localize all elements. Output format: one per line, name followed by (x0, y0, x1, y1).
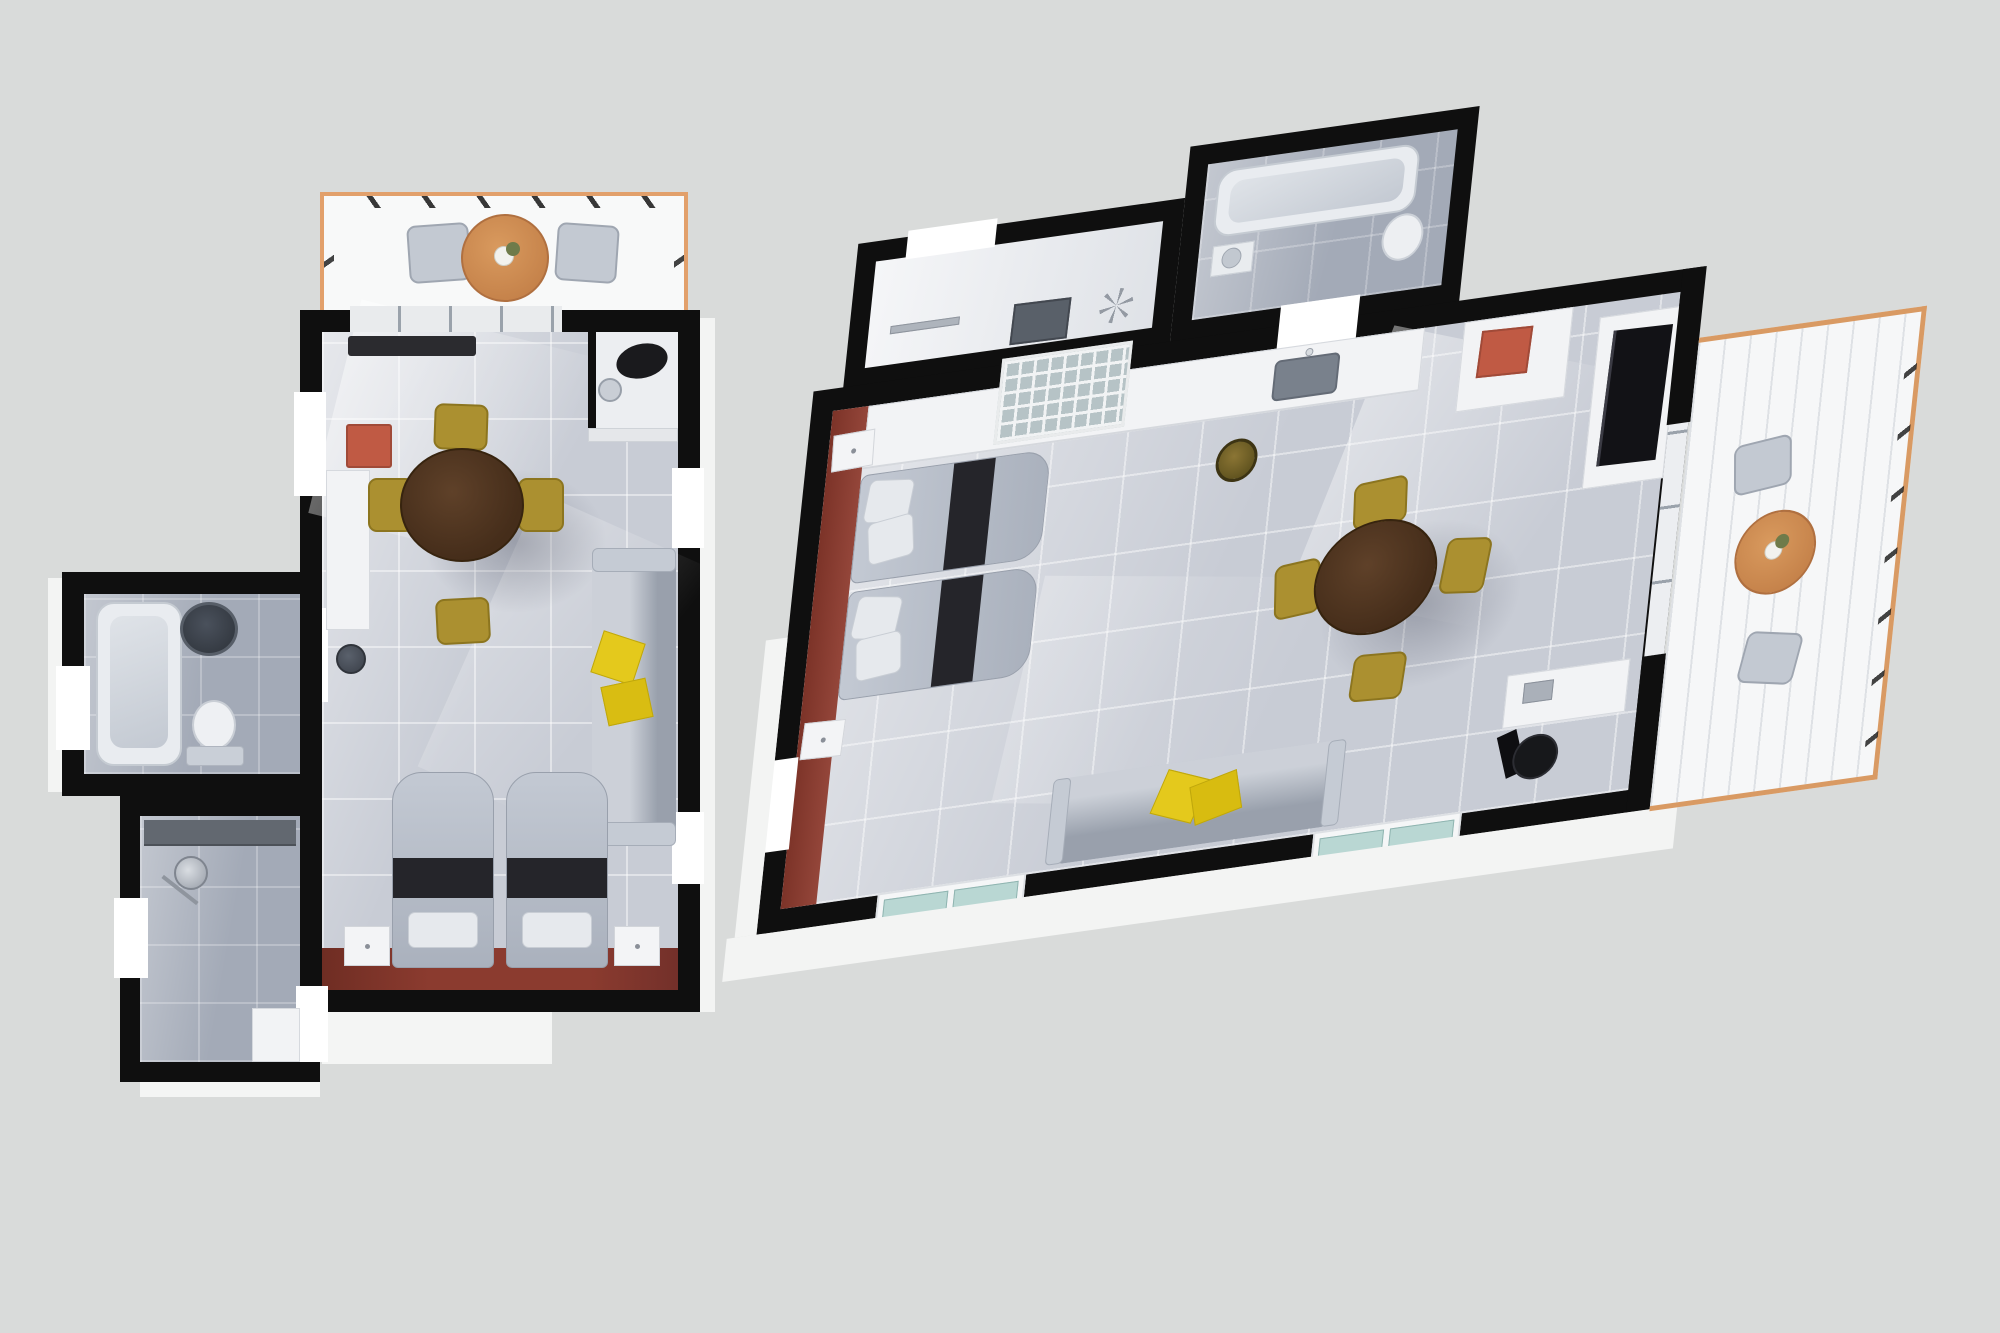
window-right-wall (672, 468, 704, 548)
window-right-wall (672, 812, 704, 884)
dining-table (400, 448, 524, 562)
shower-room-bench (252, 1008, 300, 1062)
bed-blanket-stripe (507, 858, 607, 898)
wc-partition-wall (588, 332, 596, 432)
exterior-slab-right (700, 318, 715, 1012)
tall-cabinet (326, 470, 370, 630)
nightstand (614, 926, 660, 966)
sofa-armrest (592, 548, 676, 572)
red-cabinet (346, 424, 392, 468)
wash-basin (336, 644, 366, 674)
dining-chair (518, 478, 564, 532)
bed-pillow (522, 912, 592, 948)
bed-blanket-stripe (393, 858, 493, 898)
bathroom-window (56, 666, 90, 750)
nightstand (800, 719, 847, 760)
scene-background (0, 0, 2000, 1333)
shower-room-window (114, 898, 148, 978)
bathtub-inner (110, 616, 168, 748)
wall-shelf (348, 336, 476, 356)
round-dark-basin (180, 602, 238, 656)
red-box (1476, 326, 1534, 379)
window-left-wall (294, 392, 326, 496)
exterior-slab-bottom (322, 1012, 552, 1064)
dining-chair (1348, 651, 1408, 703)
railing-posts (326, 196, 682, 208)
shower-head (174, 856, 208, 890)
railing-posts-left (324, 208, 334, 308)
shower-room-exterior-slab (140, 1082, 320, 1097)
nightstand (344, 926, 390, 966)
hall-mirror-panel (1009, 297, 1071, 345)
dining-chair (433, 403, 489, 451)
shower-room-shelf (144, 820, 296, 846)
wc-basin (598, 378, 622, 402)
wc-counter (588, 428, 678, 442)
balcony-door-glass (350, 306, 562, 332)
railing-posts-right (674, 208, 684, 308)
balcony-chair (554, 222, 620, 284)
toilet-tank (186, 746, 244, 766)
toilet-bowl (192, 700, 236, 750)
dining-chair (435, 597, 491, 646)
bed-pillow (408, 912, 478, 948)
shower-room-door (296, 986, 328, 1062)
plant-leaves (506, 242, 520, 256)
